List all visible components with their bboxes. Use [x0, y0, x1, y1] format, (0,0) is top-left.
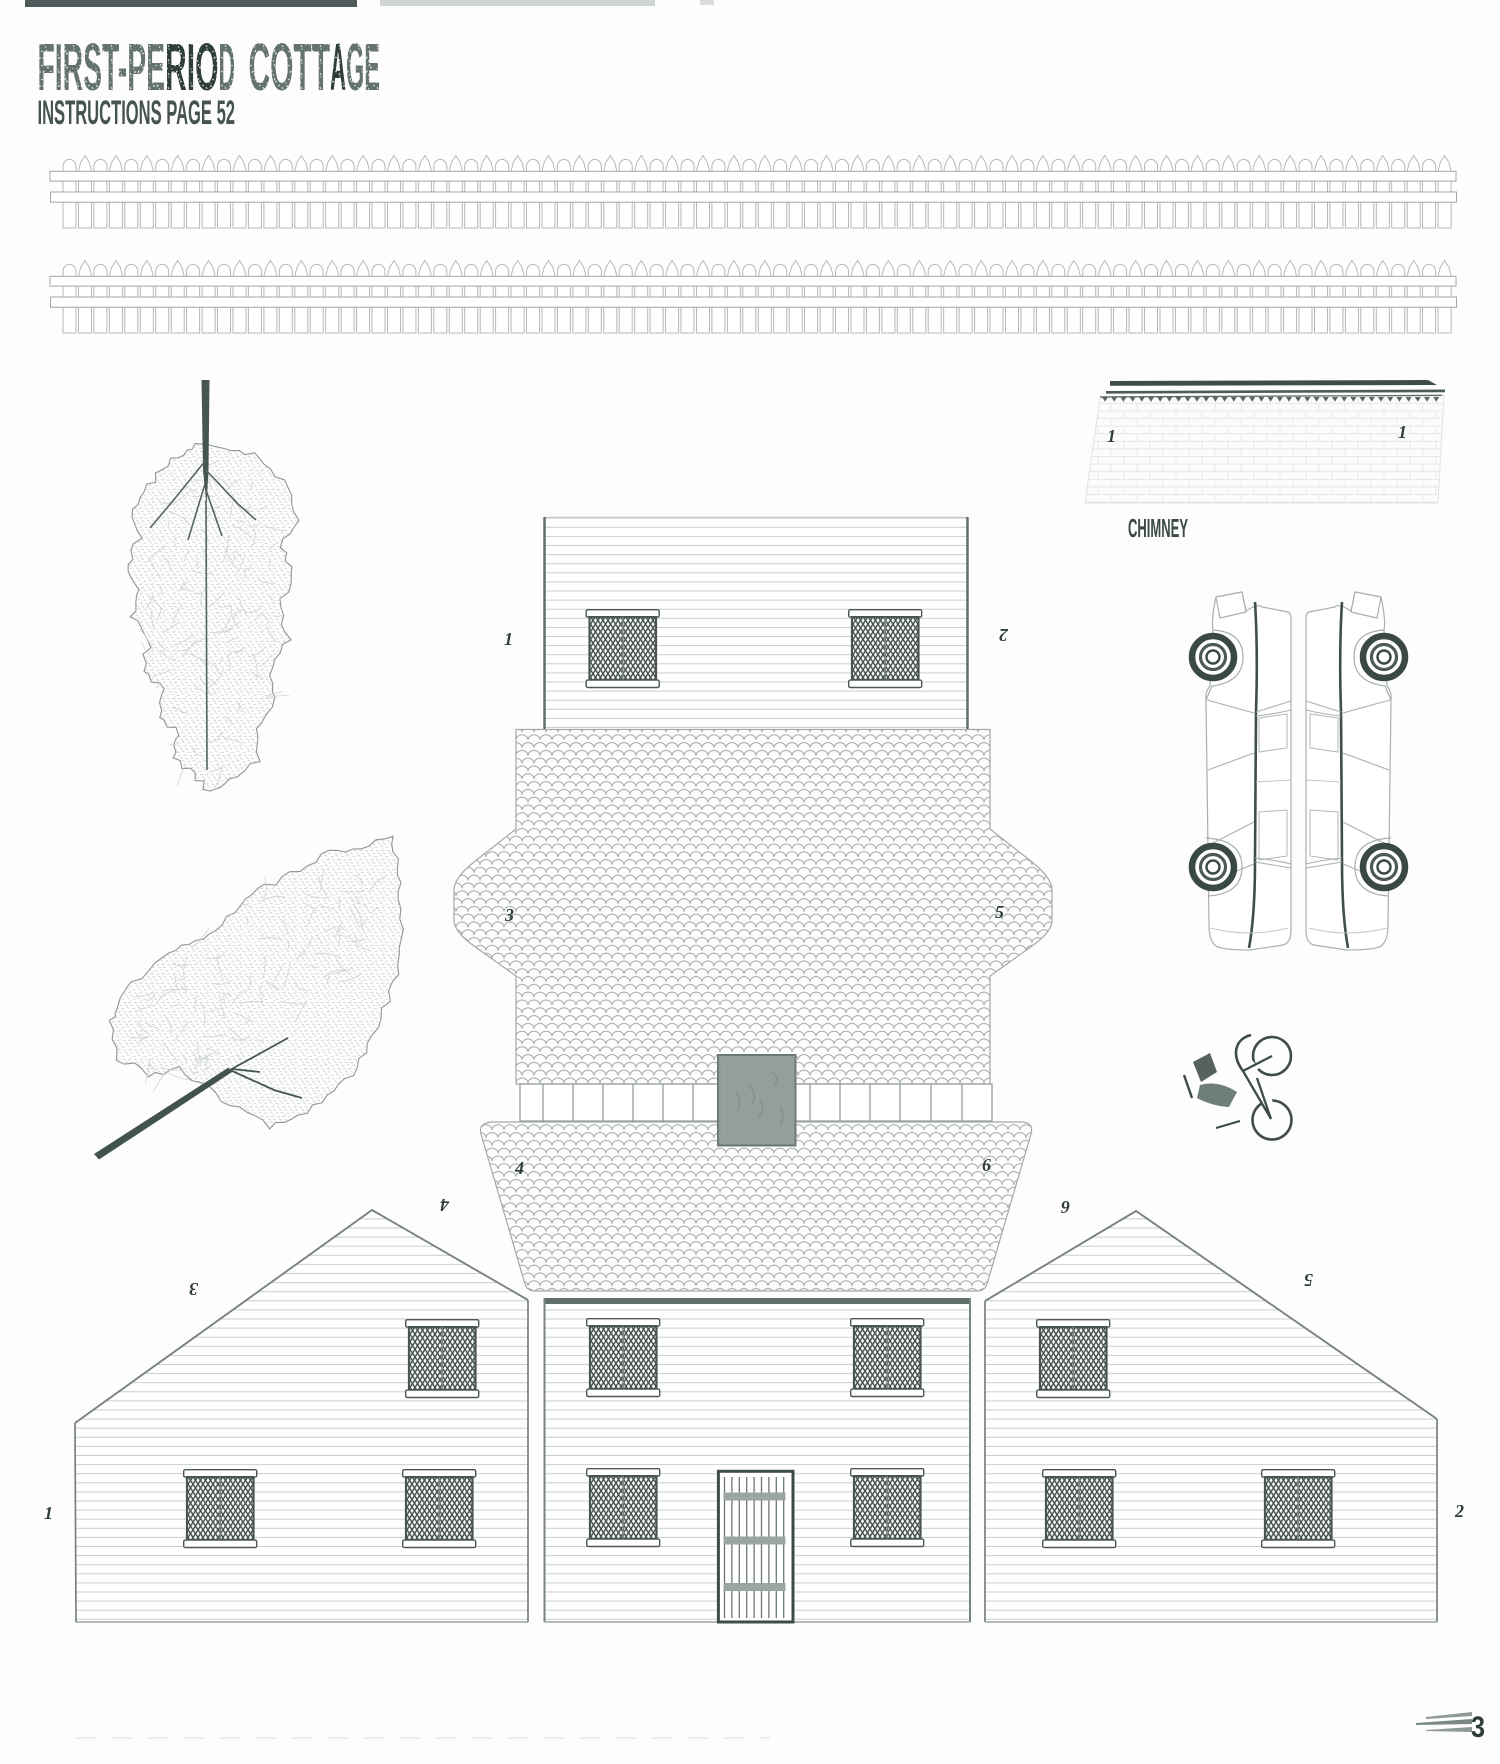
svg-text:3: 3: [1471, 1711, 1485, 1744]
svg-text:2: 2: [1454, 1501, 1464, 1521]
svg-text:1: 1: [44, 1503, 53, 1523]
svg-text:4: 4: [514, 1158, 524, 1178]
svg-text:3: 3: [504, 905, 514, 925]
svg-text:6: 6: [982, 1155, 991, 1175]
svg-text:5: 5: [1304, 1270, 1313, 1290]
svg-text:1: 1: [504, 629, 513, 649]
svg-text:1: 1: [1107, 426, 1116, 446]
svg-text:4: 4: [440, 1195, 450, 1215]
svg-text:2: 2: [999, 625, 1009, 645]
svg-text:CHIMNEY: CHIMNEY: [1128, 513, 1188, 543]
svg-text:5: 5: [995, 902, 1004, 922]
svg-text:6: 6: [1061, 1197, 1070, 1217]
svg-text:3: 3: [189, 1279, 199, 1299]
svg-text:INSTRUCTIONS PAGE 52: INSTRUCTIONS PAGE 52: [38, 94, 236, 132]
svg-text:1: 1: [1398, 422, 1407, 442]
